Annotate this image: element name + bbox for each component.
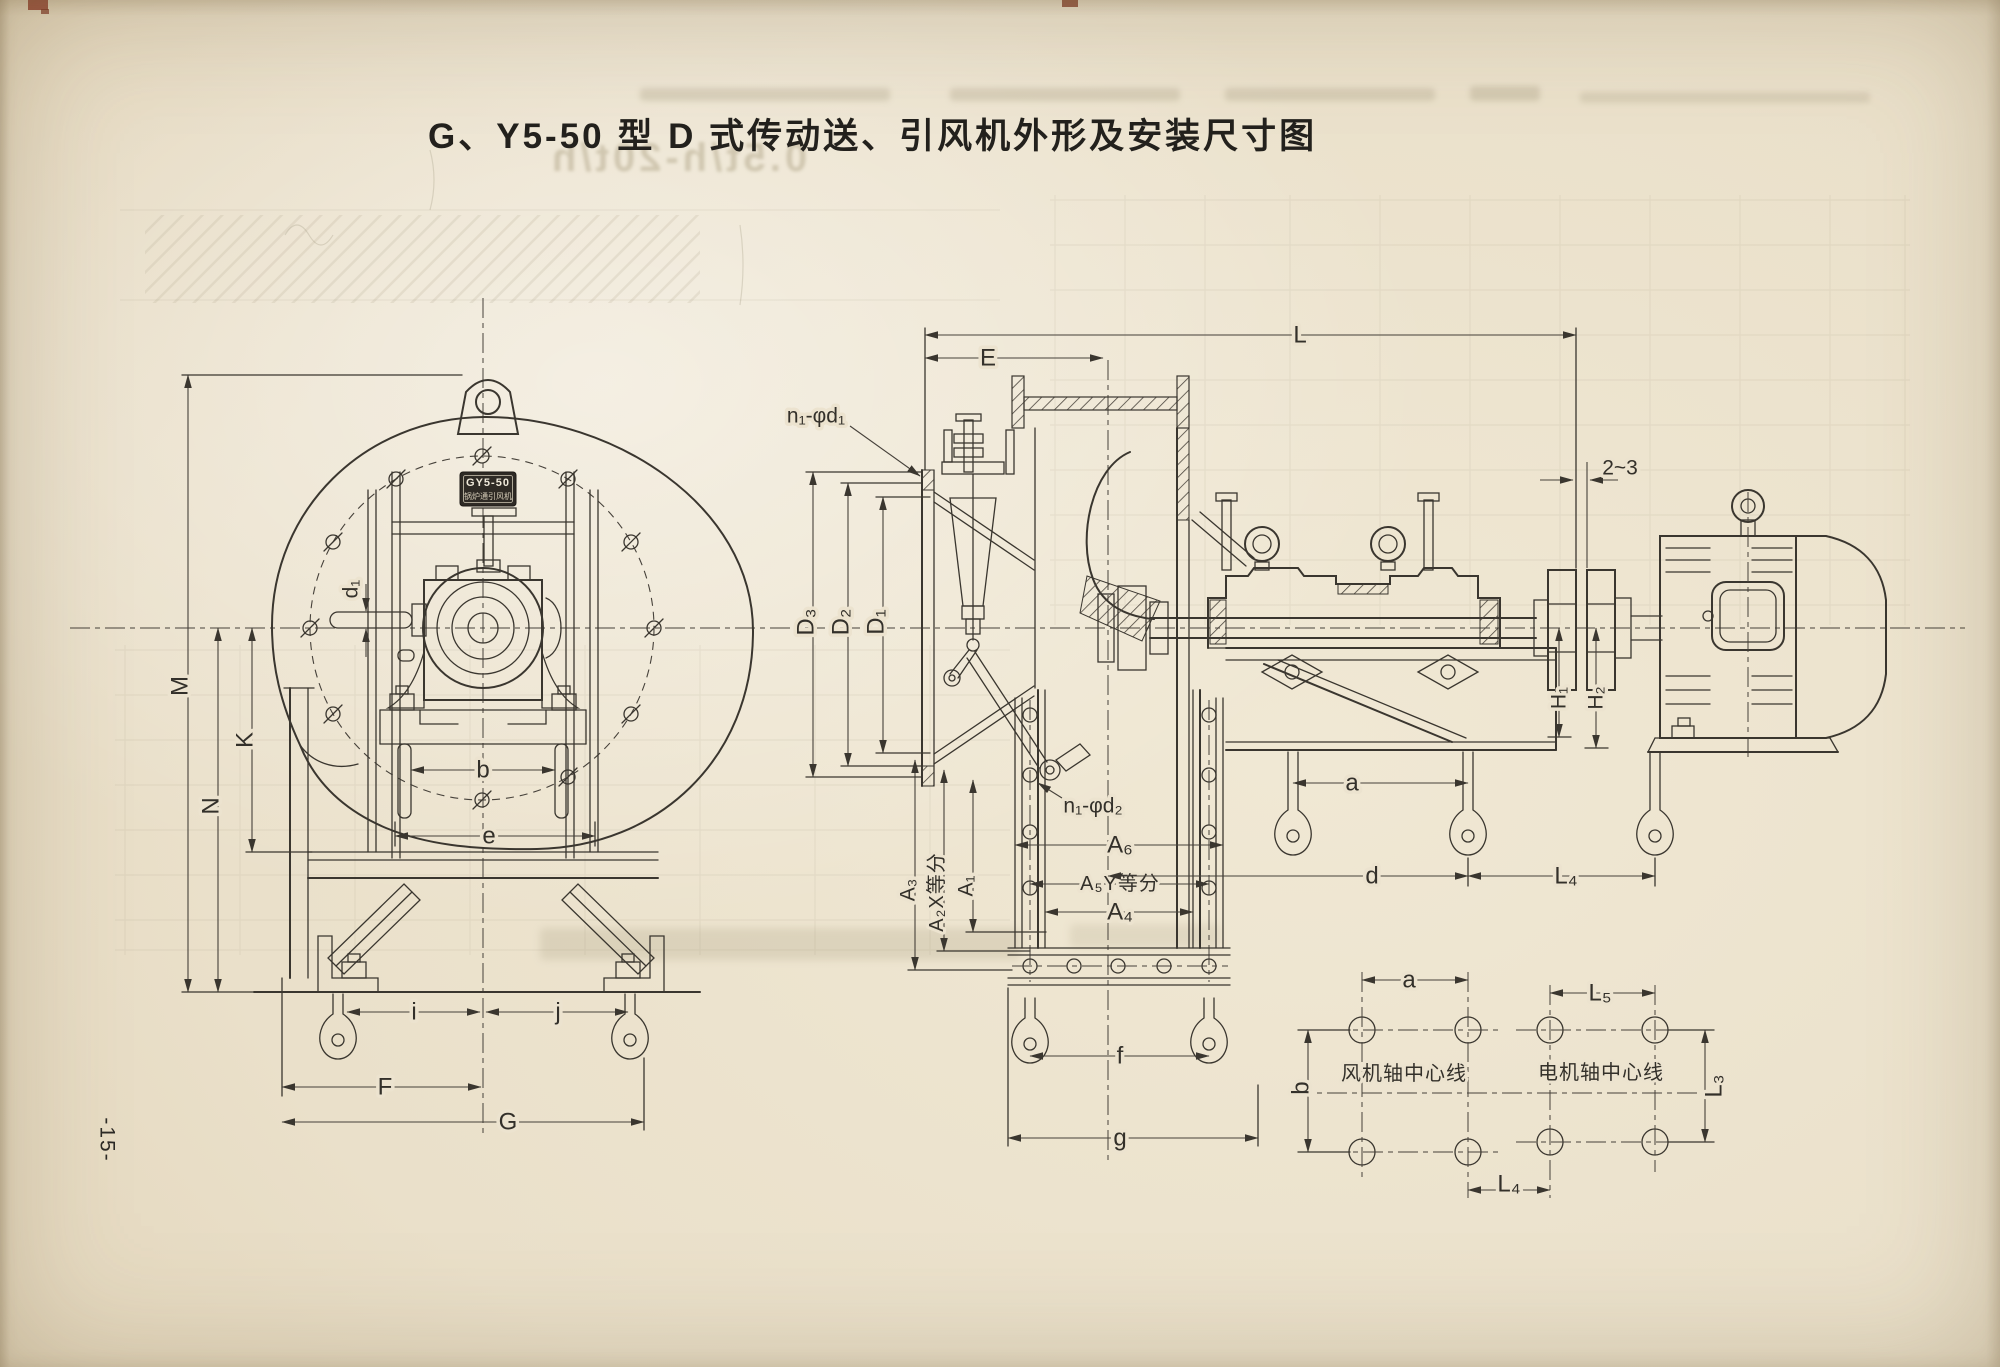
dim-label-L5: L₅	[1588, 980, 1611, 1007]
anchor-bolt	[320, 994, 356, 1059]
dim-label-f: f	[1117, 1043, 1124, 1070]
nameplate-model: GY5-50	[466, 477, 510, 489]
dim-label-D1: D₁	[863, 609, 890, 634]
dim-label-n1-d1: n₁-φd₁	[787, 405, 845, 428]
dim-label-E: E	[980, 345, 996, 372]
lifting-lug	[458, 380, 518, 434]
dim-label-g: g	[1113, 1125, 1126, 1152]
anchor-bolt	[1191, 998, 1227, 1063]
dim-label-b-plan: b	[1288, 1081, 1315, 1094]
motor	[1637, 490, 1886, 855]
dim-label-d: d	[1365, 863, 1378, 890]
dim-label-A1: A₁	[955, 875, 978, 896]
anchor-bolt	[1450, 752, 1486, 855]
dim-label-N: N	[198, 797, 225, 814]
dim-label-A2: A₂X等分	[925, 852, 948, 931]
dim-label-A3: A₃	[897, 879, 920, 902]
dim-label-A4: A₄	[1107, 899, 1133, 926]
bearing-pedestal	[1192, 493, 1500, 648]
dim-label-i: i	[411, 999, 416, 1026]
dim-label-M: M	[167, 676, 194, 696]
dim-label-L4-plan: L₄	[1497, 1171, 1520, 1198]
anchor-bolt	[1275, 752, 1311, 855]
ghost-layer	[115, 150, 1910, 955]
page-number: -15-	[95, 1117, 119, 1162]
outlet-dimensions: n₁-φd₂ A₆ A₅Y等分 A₄ A₃ A₂X等分 A₁ f g	[897, 760, 1259, 1152]
anchor-bolt	[1637, 752, 1673, 855]
dim-label-H2: H₂	[1585, 686, 1608, 709]
bedplate	[1226, 648, 1556, 855]
engineering-drawing: GY5-50 锅炉通引风机	[0, 0, 2000, 1367]
dim-label-D2: D₂	[828, 609, 855, 636]
inlet-vane-linkage	[942, 414, 1090, 780]
foundation-plan: a L₅ b L₃ L₄ 风机轴中心线 电机轴中心线	[1288, 967, 1728, 1199]
dim-label-L4-elev: L₄	[1554, 863, 1577, 890]
front-view: GY5-50 锅炉通引风机	[167, 298, 754, 1136]
side-view: L E n₁-φd₁	[787, 322, 1886, 1161]
dim-label-F: F	[378, 1074, 393, 1101]
inlet-diameter-dimensions: D₃ D₂ D₁	[793, 472, 931, 777]
dim-label-G: G	[499, 1109, 518, 1136]
dim-label-n1-d2: n₁-φd₂	[1063, 795, 1122, 818]
dim-label-L: L	[1293, 322, 1306, 349]
dim-label-K: K	[232, 732, 259, 748]
bedplate-dimensions: a d L₄	[1108, 770, 1655, 890]
fan-casing-section	[1012, 376, 1536, 948]
dim-label-D3: D₃	[793, 608, 820, 635]
front-view-dimensions: M N K d₁ b e i j F G	[167, 375, 645, 1136]
dim-label-A6: A₆	[1107, 832, 1133, 859]
dim-label-H1: H₁	[1548, 687, 1571, 709]
page-title: G、Y5-50 型 D 式传动送、引风机外形及安装尺寸图	[428, 108, 1317, 159]
anchor-bolt	[612, 994, 648, 1059]
motor-axis-centerline-label: 电机轴中心线	[1538, 1061, 1664, 1084]
fan-axis-centerline-label: 风机轴中心线	[1341, 1062, 1467, 1085]
dim-label-a-plan: a	[1402, 967, 1416, 994]
dim-label-L3: L₃	[1701, 1074, 1728, 1097]
dim-label-a-elev: a	[1345, 770, 1359, 797]
dim-label-coupling-gap: 2~3	[1602, 457, 1638, 480]
anchor-bolt	[1012, 998, 1048, 1063]
coupling: 2~3 H₁ H₂	[1500, 457, 1662, 749]
foundation-holes	[1349, 1017, 1668, 1165]
dim-label-b: b	[476, 757, 489, 784]
dim-label-e: e	[482, 823, 495, 850]
nameplate-subtitle: 锅炉通引风机	[464, 491, 512, 501]
dim-label-j: j	[554, 999, 560, 1026]
dim-label-d1: d₁	[340, 580, 363, 599]
